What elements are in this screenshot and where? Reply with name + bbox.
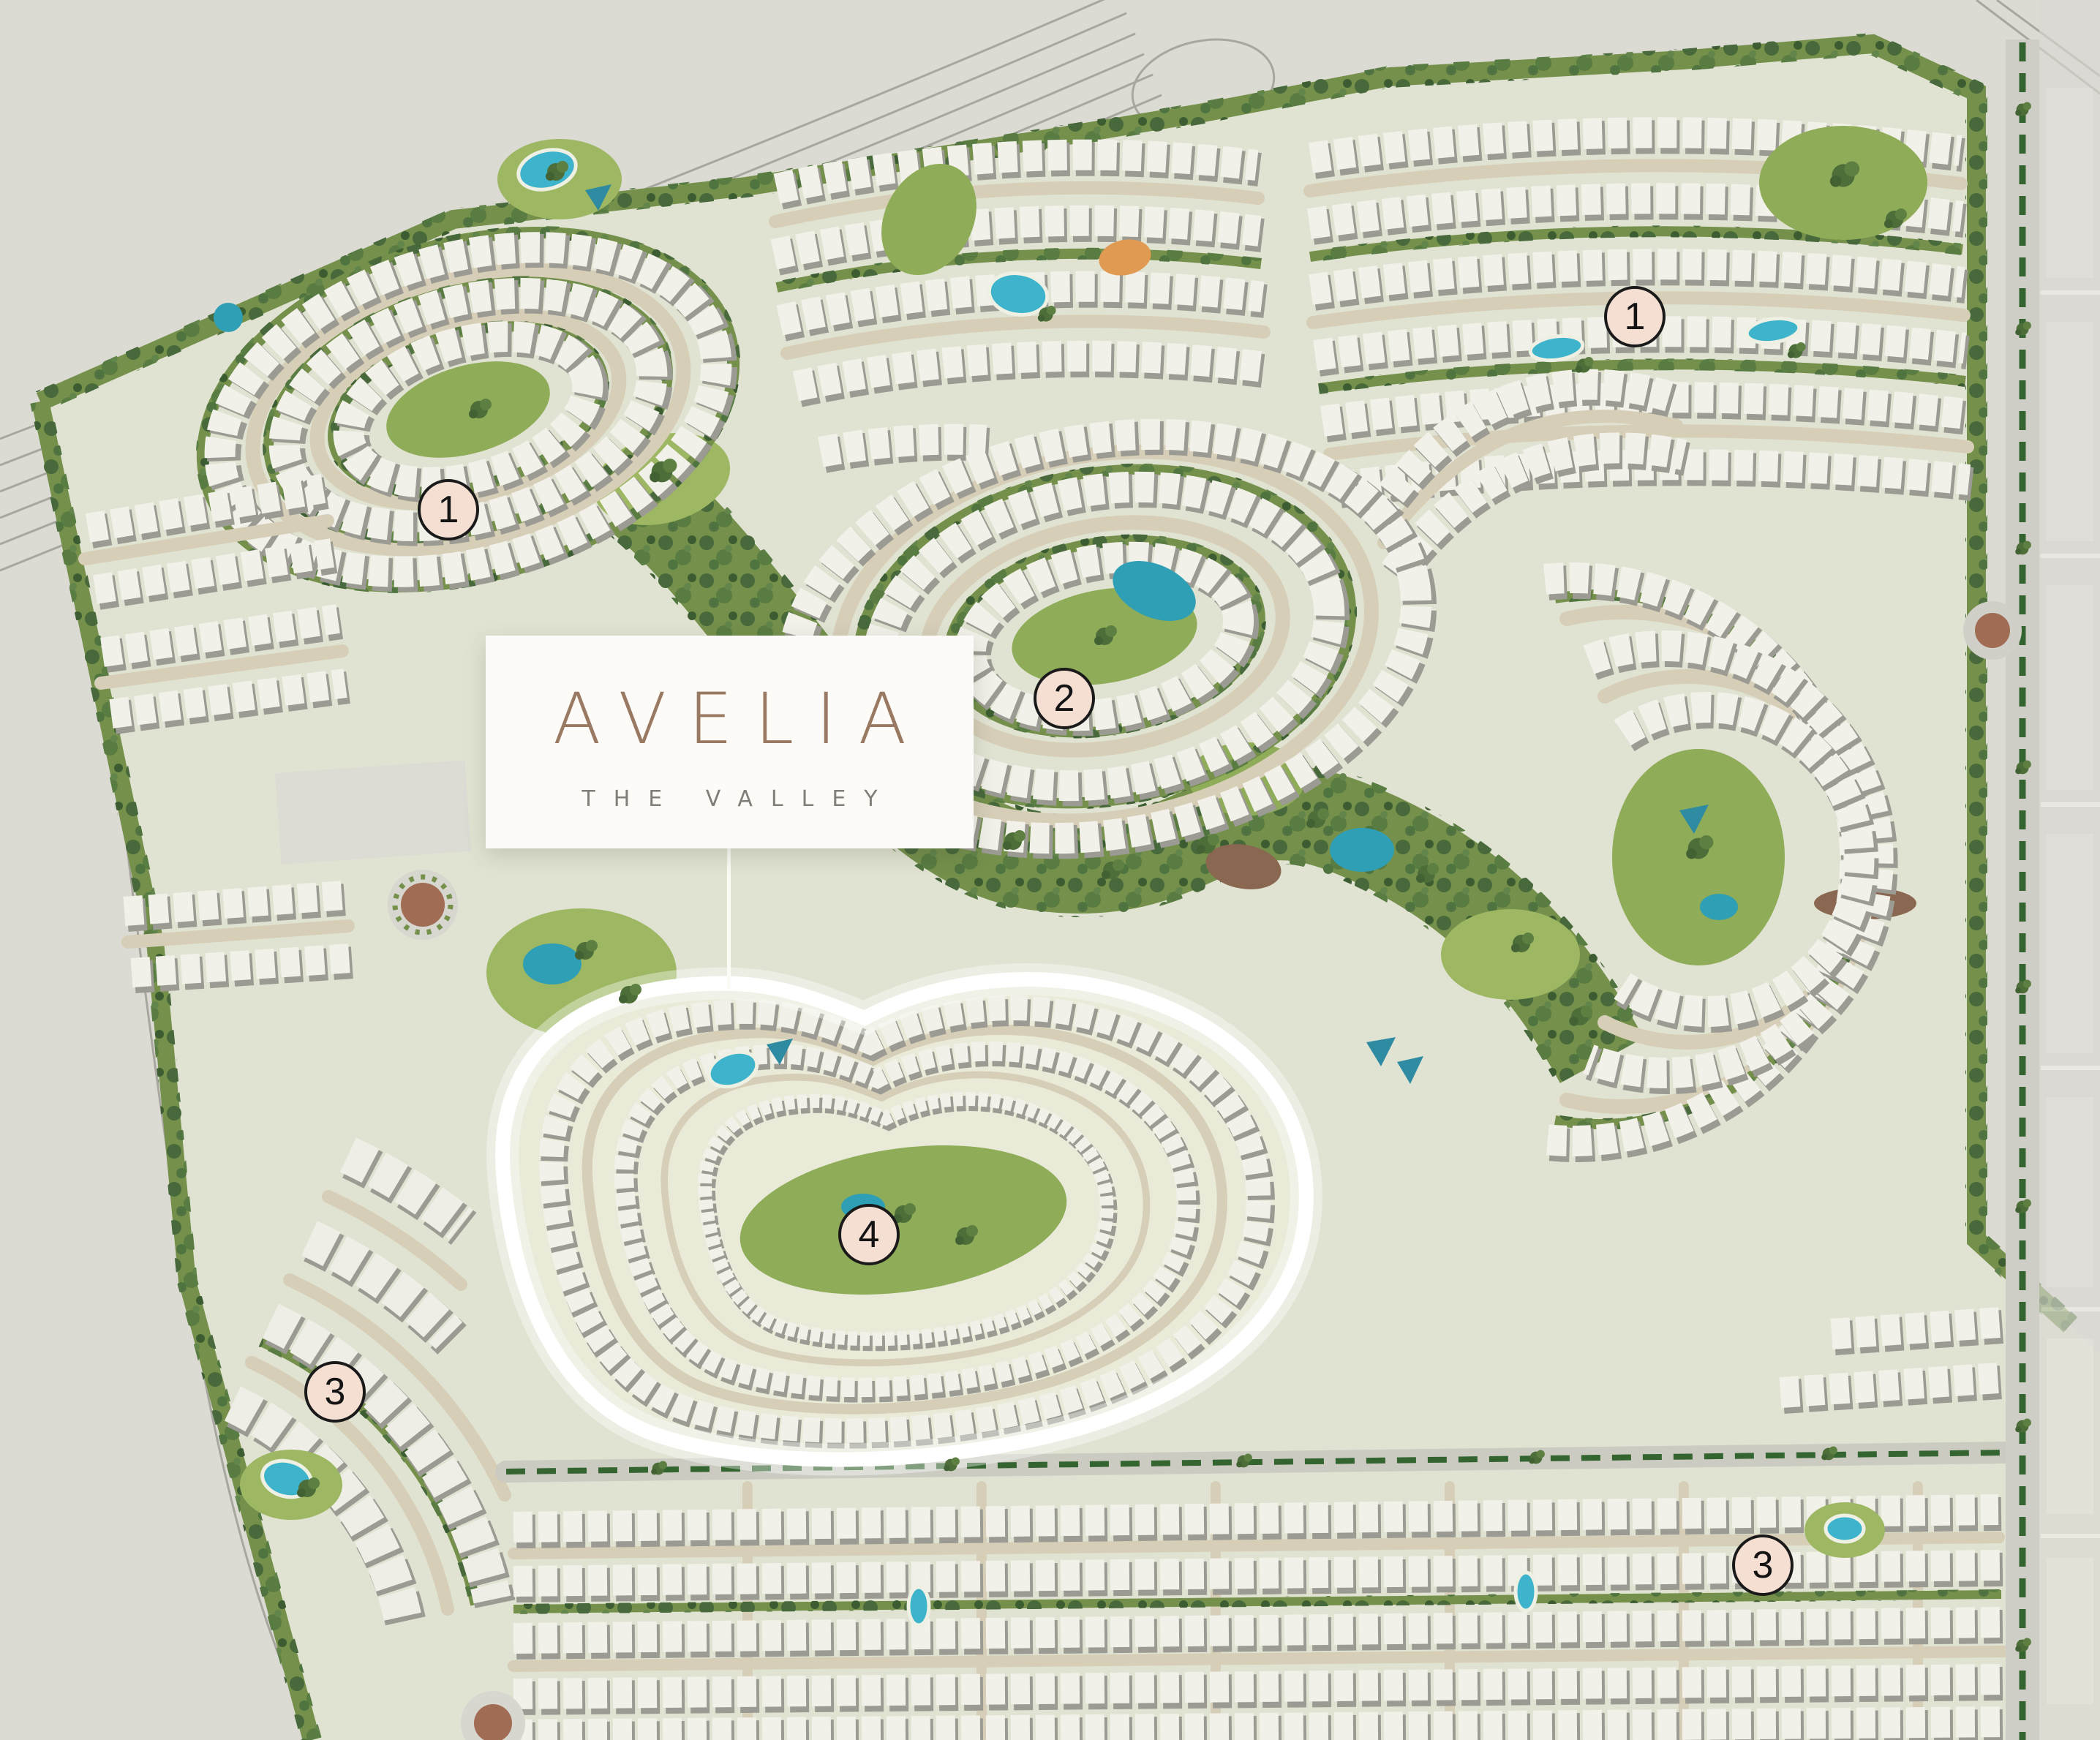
marker-label: 2: [1054, 679, 1075, 718]
map-marker-1-east[interactable]: 1: [1604, 286, 1666, 347]
northwest-pond: [214, 303, 243, 332]
marker-label: 3: [325, 1373, 346, 1411]
east-avenue: [2006, 39, 2039, 1740]
brand-subtitle: THE VALLEY: [486, 786, 974, 812]
map-marker-1-west[interactable]: 1: [418, 479, 479, 541]
map-marker-3-east[interactable]: 3: [1732, 1534, 1794, 1596]
map-marker-3-west[interactable]: 3: [304, 1361, 366, 1423]
faded-neighbour-community: [2039, 0, 2100, 1740]
entry-plaza: [275, 760, 471, 865]
leader-line: [727, 848, 731, 989]
map-marker-4[interactable]: 4: [838, 1204, 900, 1265]
marker-label: 1: [1625, 298, 1646, 336]
marker-label: 1: [438, 491, 459, 529]
masterplan-stage: AVELIA THE VALLEY 1 1 2 3 3 4: [0, 0, 2100, 1740]
marker-label: 3: [1753, 1546, 1774, 1584]
project-title-card: AVELIA THE VALLEY: [486, 636, 974, 848]
brand-wordmark: AVELIA: [486, 678, 974, 760]
map-marker-2[interactable]: 2: [1034, 668, 1095, 729]
marker-label: 4: [859, 1216, 880, 1254]
masterplan-illustration: [0, 0, 2100, 1740]
